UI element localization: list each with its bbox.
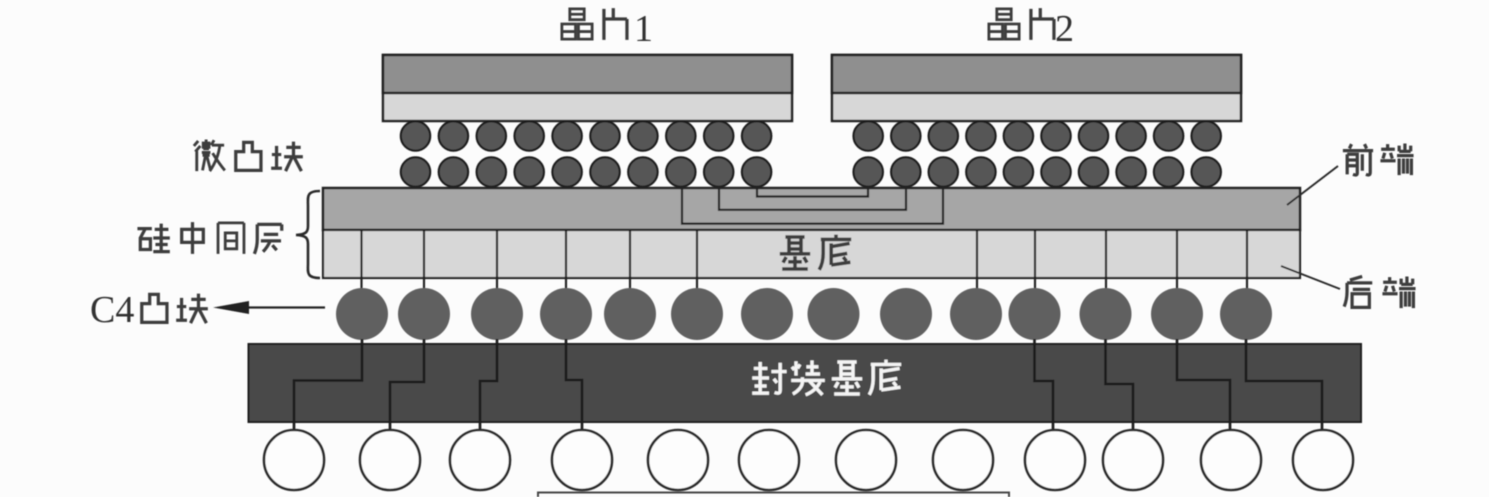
- svg-text:2: 2: [1055, 8, 1074, 50]
- svg-text:C4: C4: [90, 289, 134, 331]
- svg-text:1: 1: [634, 8, 653, 50]
